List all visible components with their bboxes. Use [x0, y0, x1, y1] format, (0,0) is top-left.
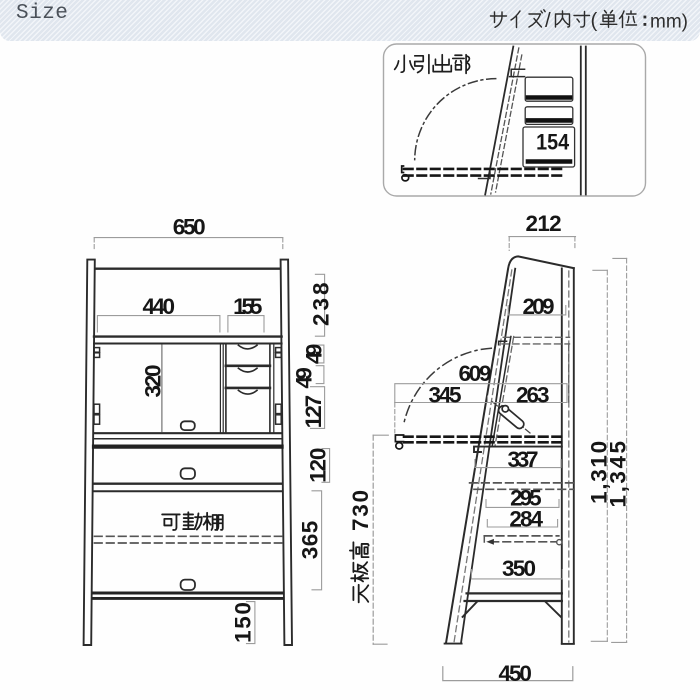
svg-text:49: 49 — [302, 344, 327, 365]
svg-text:/: / — [545, 9, 551, 32]
svg-text:730: 730 — [348, 490, 373, 531]
svg-text:212: 212 — [526, 211, 562, 236]
svg-text:350: 350 — [502, 556, 536, 581]
svg-text:650: 650 — [173, 215, 206, 240]
svg-text:120: 120 — [305, 448, 330, 483]
svg-text:49: 49 — [291, 367, 316, 389]
svg-text:154: 154 — [536, 130, 569, 155]
svg-text:450: 450 — [498, 661, 532, 686]
svg-text:127: 127 — [301, 395, 326, 428]
svg-text:(: ( — [591, 9, 598, 32]
svg-text:345: 345 — [429, 383, 462, 408]
svg-text:mm): mm) — [650, 12, 688, 33]
svg-text:263: 263 — [516, 383, 550, 408]
svg-text:365: 365 — [297, 521, 322, 560]
svg-text:150: 150 — [230, 602, 255, 643]
svg-text:320: 320 — [141, 365, 166, 398]
svg-text:238: 238 — [308, 282, 333, 326]
svg-text:209: 209 — [523, 294, 555, 319]
svg-text:155: 155 — [233, 294, 262, 319]
svg-text:337: 337 — [508, 447, 539, 472]
svg-text:1,345: 1,345 — [606, 441, 631, 508]
svg-text:609: 609 — [459, 361, 492, 386]
svg-text:440: 440 — [143, 294, 176, 319]
svg-text:284: 284 — [509, 506, 543, 531]
